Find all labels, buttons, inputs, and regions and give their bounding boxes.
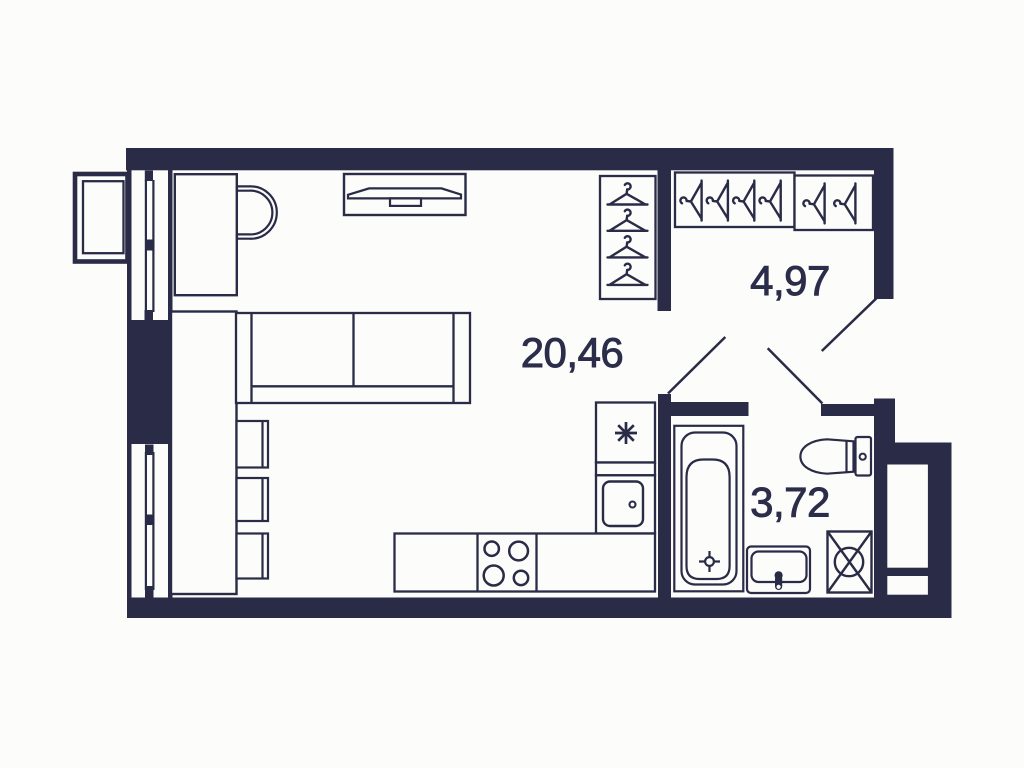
- svg-text:3,72: 3,72: [750, 479, 830, 526]
- svg-text:4,97: 4,97: [750, 257, 830, 304]
- svg-text:20,46: 20,46: [521, 329, 624, 376]
